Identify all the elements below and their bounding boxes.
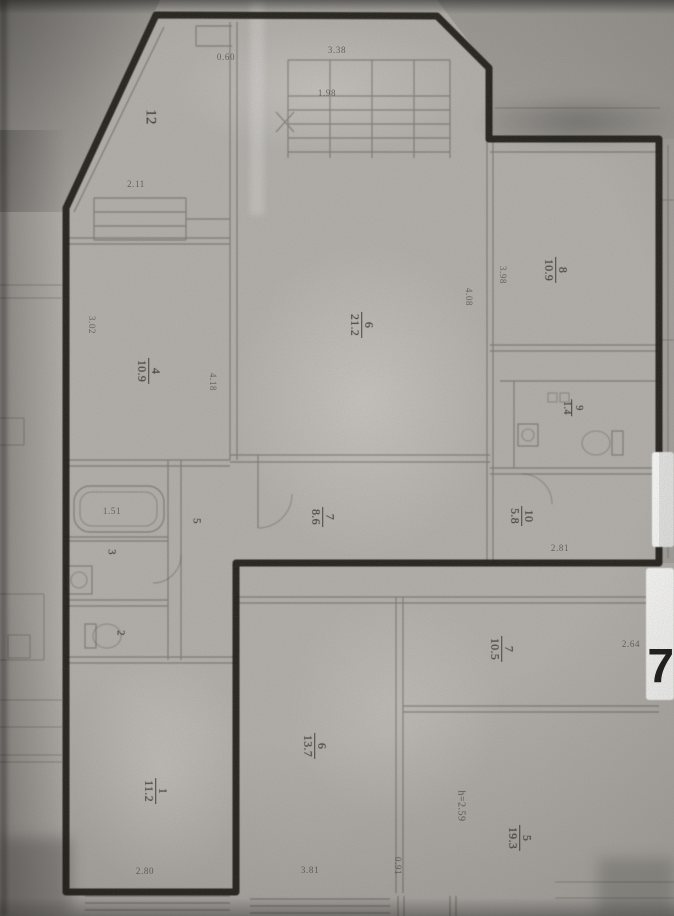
annotation-h=2.59: h=2.59 (456, 790, 467, 821)
room-label-10-5.8: 105.8 (509, 506, 535, 526)
dimension-4.18: 4.18 (208, 373, 218, 391)
dimension-2.11: 2.11 (127, 179, 145, 189)
room-label-12: 12 (142, 109, 157, 125)
floorplan-photo: 12410.9621.2810.978.6105.891.4325111.261… (0, 0, 674, 916)
dimension-2.81: 2.81 (551, 543, 569, 553)
room-label-6-21.2: 621.2 (349, 312, 375, 338)
room-label-7-8.6: 78.6 (310, 507, 336, 527)
dimension-1.51: 1.51 (103, 506, 121, 516)
dimension-3.98: 3.98 (498, 266, 508, 284)
room-label-7-10.5: 710.5 (489, 636, 515, 662)
dimension-3.81: 3.81 (301, 865, 319, 875)
room-label-8-10.9: 810.9 (543, 257, 569, 283)
labels-layer: 12410.9621.2810.978.6105.891.4325111.261… (0, 0, 674, 916)
annotation-7: 7 (647, 640, 674, 695)
dimension-3.02: 3.02 (87, 316, 97, 334)
dimension-2.64: 2.64 (622, 639, 640, 649)
room-label-3: 3 (105, 549, 116, 555)
room-label-4-10.9: 410.9 (136, 358, 162, 384)
dimension-1.98: 1.98 (318, 88, 336, 98)
dimension-4.08: 4.08 (464, 288, 474, 306)
room-label-6-13.7: 613.7 (302, 733, 328, 759)
dimension-0.60: 0.60 (217, 52, 235, 62)
room-label-2: 2 (114, 630, 125, 636)
dimension-2.80: 2.80 (136, 866, 154, 876)
room-label-5-19.3: 519.3 (507, 825, 533, 851)
room-label-5: 5 (190, 518, 201, 524)
room-label-9-1.4: 91.4 (561, 399, 583, 416)
dimension-3.38: 3.38 (328, 45, 346, 55)
room-label-1-11.2: 111.2 (143, 778, 169, 804)
dimension-0.91: 0.91 (393, 857, 403, 875)
